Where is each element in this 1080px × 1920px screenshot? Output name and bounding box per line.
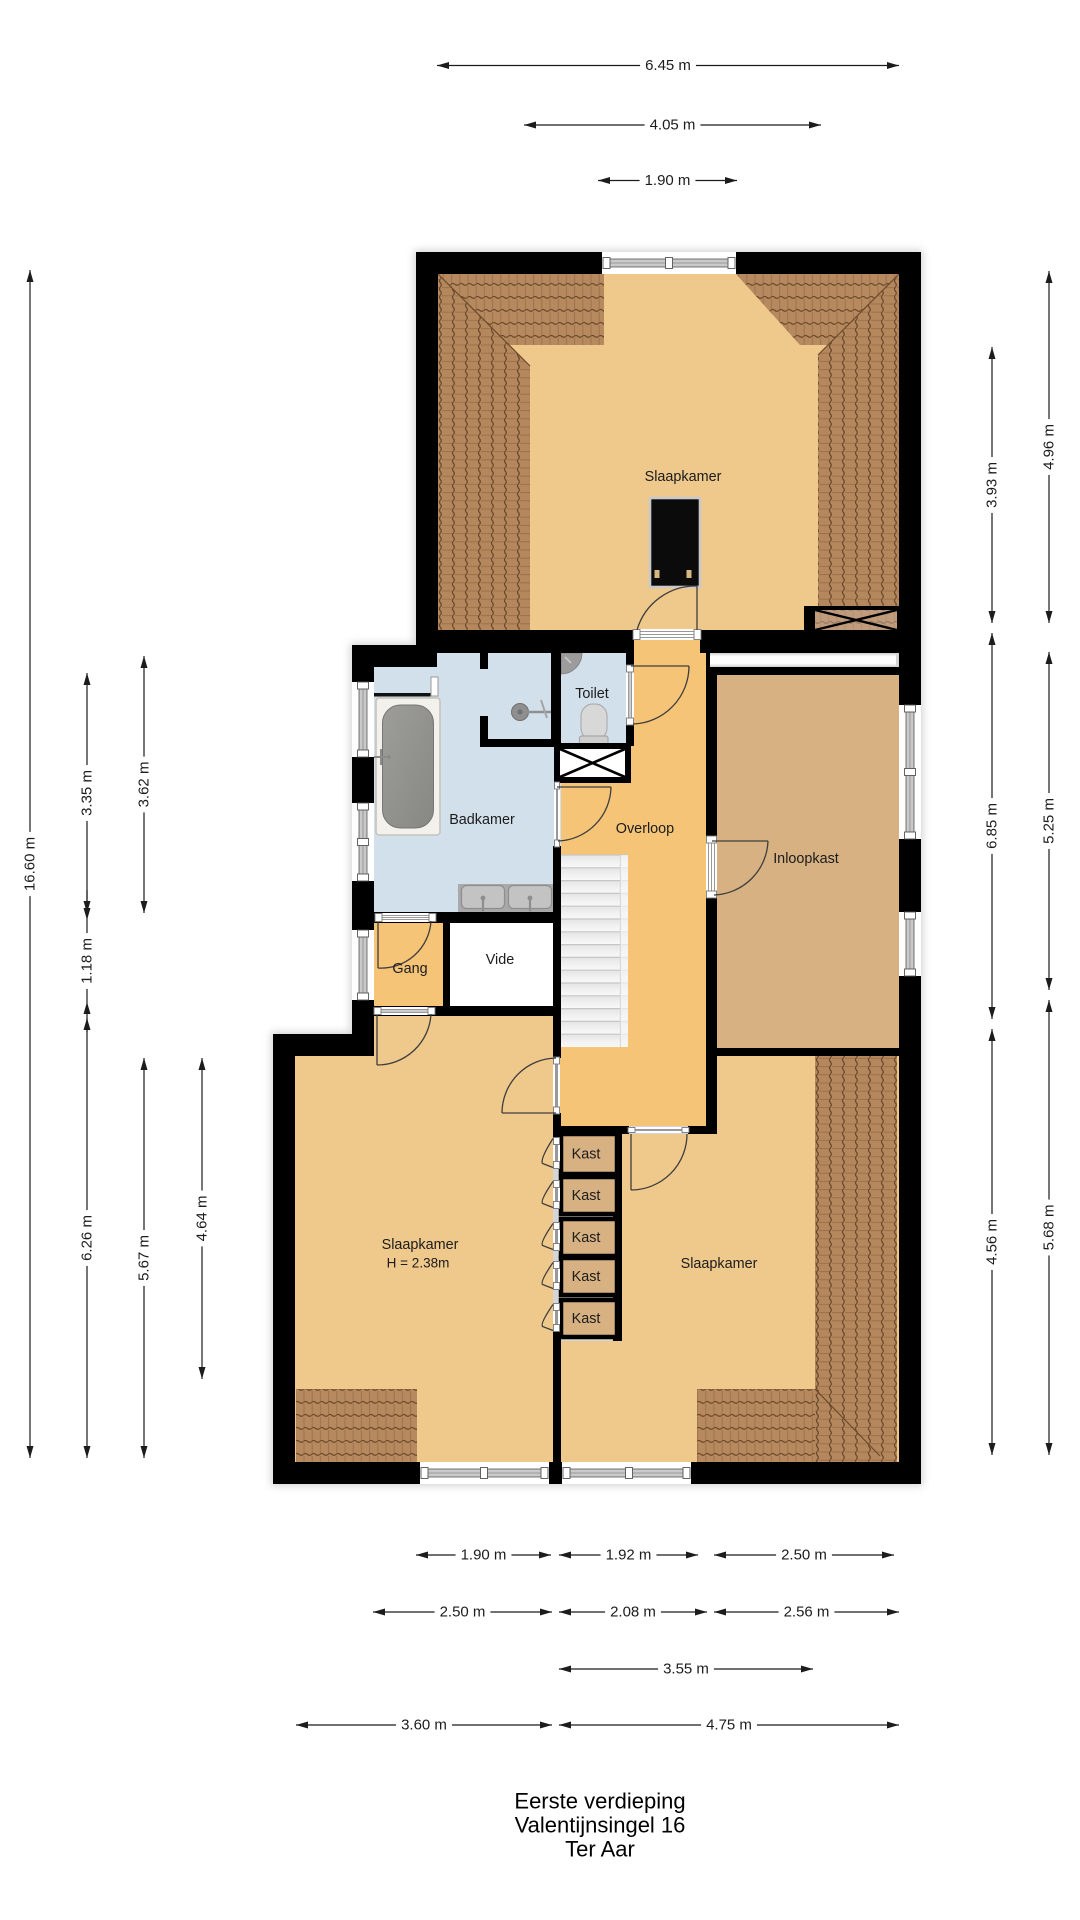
svg-text:5.68 m: 5.68 m [1041,1205,1058,1251]
svg-text:3.55 m: 3.55 m [663,1661,709,1678]
svg-text:Ter Aar: Ter Aar [565,1837,635,1862]
svg-text:4.56 m: 4.56 m [984,1219,1001,1265]
svg-text:Gang: Gang [392,961,427,977]
svg-text:Kast: Kast [572,1230,601,1246]
svg-text:Badkamer: Badkamer [449,812,515,828]
svg-text:Kast: Kast [572,1188,601,1204]
svg-text:Valentijnsingel 16: Valentijnsingel 16 [515,1813,686,1838]
svg-text:4.75 m: 4.75 m [706,1717,752,1734]
svg-text:Kast: Kast [572,1311,601,1327]
svg-text:5.67 m: 5.67 m [136,1235,153,1281]
svg-text:2.56 m: 2.56 m [784,1604,830,1621]
svg-text:Slaapkamer: Slaapkamer [645,469,722,485]
svg-text:Inloopkast: Inloopkast [773,851,839,867]
svg-text:5.25 m: 5.25 m [1041,798,1058,844]
svg-text:4.05 m: 4.05 m [650,117,696,134]
svg-text:Vide: Vide [486,952,515,968]
svg-text:1.90 m: 1.90 m [645,172,691,189]
svg-text:3.35 m: 3.35 m [79,770,96,816]
svg-text:Slaapkamer: Slaapkamer [681,1256,758,1272]
svg-text:3.60 m: 3.60 m [401,1717,447,1734]
svg-text:2.50 m: 2.50 m [440,1604,486,1621]
svg-text:Kast: Kast [572,1147,601,1163]
svg-text:1.90 m: 1.90 m [461,1547,507,1564]
svg-text:2.08 m: 2.08 m [610,1604,656,1621]
svg-text:Overloop: Overloop [616,821,674,837]
svg-text:H = 2.38m: H = 2.38m [387,1256,450,1271]
svg-text:16.60 m: 16.60 m [22,837,39,891]
svg-text:6.85 m: 6.85 m [984,803,1001,849]
svg-text:Toilet: Toilet [575,686,609,702]
svg-text:Slaapkamer: Slaapkamer [382,1237,459,1253]
svg-text:6.26 m: 6.26 m [79,1215,96,1261]
svg-text:4.64 m: 4.64 m [194,1196,211,1242]
svg-text:1.18 m: 1.18 m [79,938,96,984]
svg-text:1.92 m: 1.92 m [606,1547,652,1564]
svg-text:4.96 m: 4.96 m [1041,424,1058,470]
svg-text:3.62 m: 3.62 m [136,762,153,808]
svg-text:Kast: Kast [572,1269,601,1285]
svg-text:Eerste verdieping: Eerste verdieping [514,1789,685,1814]
svg-text:6.45 m: 6.45 m [645,57,691,74]
svg-text:2.50 m: 2.50 m [781,1547,827,1564]
svg-text:3.93 m: 3.93 m [984,462,1001,508]
